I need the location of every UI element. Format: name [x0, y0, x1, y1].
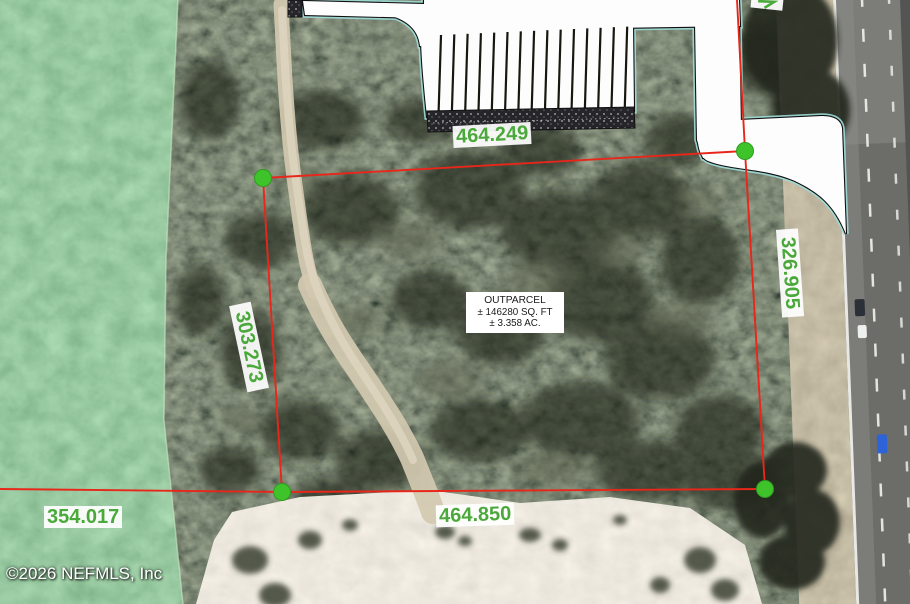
tree-clump	[225, 212, 295, 268]
dimension-label-adjacent: 354.017	[44, 506, 122, 528]
dimension-label-bottom: 464.850	[436, 503, 515, 528]
parcel-area-acres: ± 3.358 AC.	[468, 318, 562, 330]
tree-clump	[380, 220, 440, 260]
tree-clump	[418, 360, 482, 400]
tree-clump	[759, 534, 825, 590]
tree-clump	[519, 528, 541, 542]
vehicle-white	[858, 325, 867, 338]
tree-clump	[676, 184, 724, 216]
aerial-parcel-map: 464.249 326.905 303.273 464.850 354.017 …	[0, 0, 910, 604]
tree-clump	[430, 398, 530, 462]
tree-clump	[180, 60, 240, 140]
tree-clump	[390, 270, 470, 330]
tree-clump	[260, 400, 340, 460]
tree-clump	[342, 519, 358, 531]
tree-clump	[650, 577, 670, 593]
copyright-label: ©2026 NEFMLS, Inc	[6, 564, 162, 584]
vertex-top-right	[737, 143, 754, 160]
tree-clump	[552, 539, 568, 551]
vehicle-blue	[877, 434, 888, 453]
vertex-bottom-right	[757, 481, 774, 498]
vertex-bottom-left	[274, 484, 291, 501]
tree-clump	[510, 452, 590, 488]
tree-clump	[613, 515, 627, 525]
tree-clump	[650, 300, 710, 340]
parcel-info-box: OUTPARCEL ± 146280 SQ. FT ± 3.358 AC.	[466, 292, 564, 333]
tree-clump	[232, 546, 268, 574]
vehicle-dark	[855, 299, 866, 316]
tree-clump	[458, 536, 472, 546]
tree-clump	[200, 445, 260, 495]
parcel-area-sqft: ± 146280 SQ. FT	[468, 307, 562, 319]
parcel-name: OUTPARCEL	[468, 295, 562, 307]
tree-clump	[595, 440, 705, 500]
pavement-shape	[424, 0, 740, 31]
tree-clump	[592, 232, 648, 268]
tree-clump	[734, 462, 790, 538]
tree-clump	[711, 579, 739, 601]
tree-clump	[298, 531, 322, 549]
vertex-top-left	[255, 170, 272, 187]
tree-clump	[660, 215, 740, 305]
dimension-label-top: 464.249	[452, 122, 531, 148]
curb-block	[288, 0, 302, 17]
tree-clump	[220, 406, 260, 434]
tree-clump	[684, 547, 716, 573]
tree-clump	[175, 265, 225, 335]
